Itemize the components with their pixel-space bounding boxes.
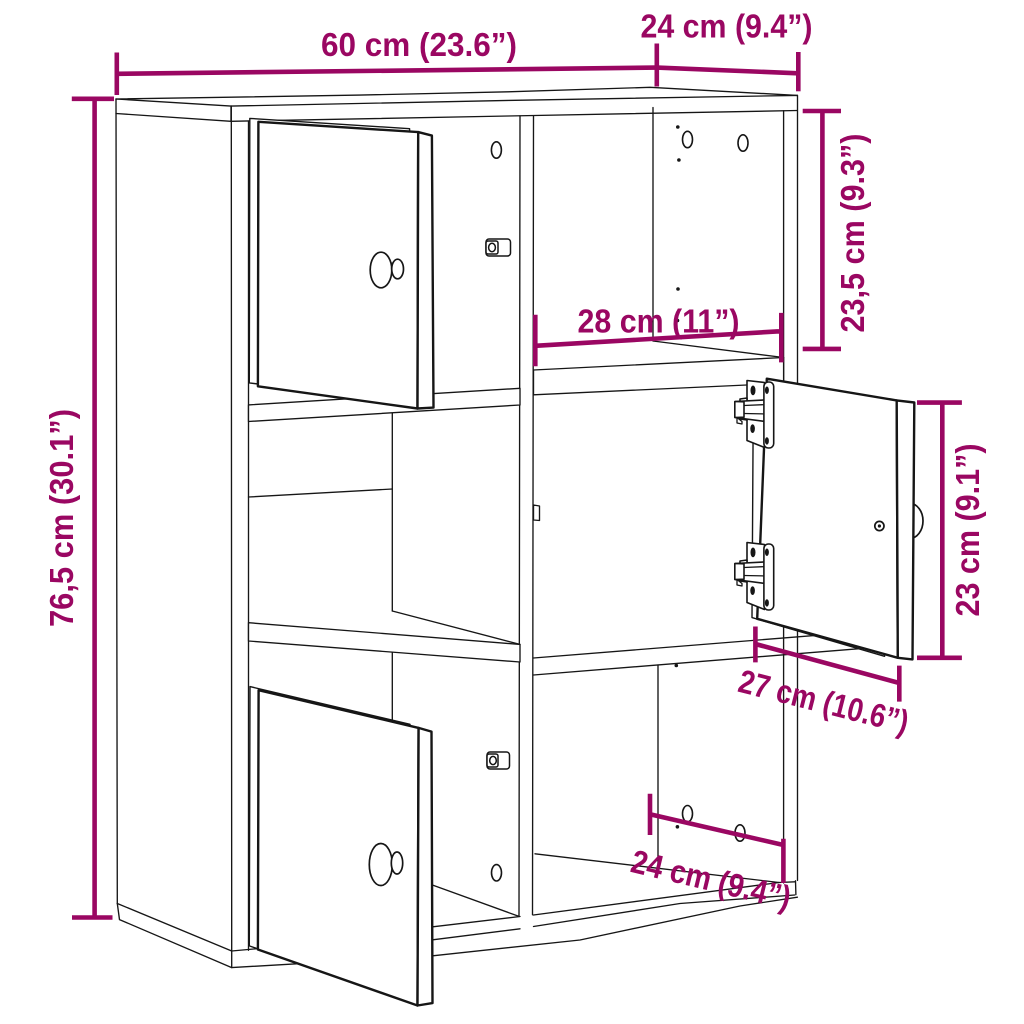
svg-text:24 cm (9.4”): 24 cm (9.4”) [641, 8, 813, 45]
svg-text:23,5 cm (9.3”): 23,5 cm (9.3”) [834, 134, 871, 333]
svg-text:60 cm (23.6”): 60 cm (23.6”) [321, 26, 517, 63]
svg-text:23 cm (9.1”): 23 cm (9.1”) [949, 444, 986, 617]
svg-text:28 cm (11”): 28 cm (11”) [578, 303, 740, 340]
svg-text:76,5 cm (30.1”): 76,5 cm (30.1”) [43, 409, 80, 627]
